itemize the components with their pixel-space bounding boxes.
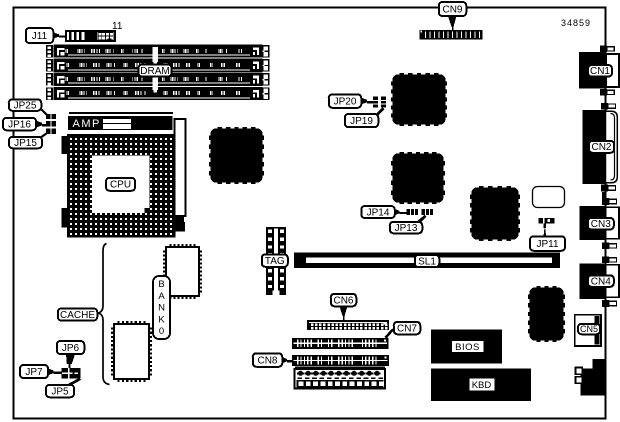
svg-text:JP11: JP11 <box>536 239 558 250</box>
svg-text:JP6: JP6 <box>62 343 80 354</box>
svg-text:CN8: CN8 <box>257 355 277 366</box>
svg-text:JP16: JP16 <box>8 119 31 130</box>
svg-text:J11: J11 <box>32 31 48 42</box>
svg-text:CN2: CN2 <box>591 142 611 153</box>
svg-text:CN7: CN7 <box>397 323 417 334</box>
svg-text:B: B <box>158 279 164 290</box>
svg-text:JP13: JP13 <box>395 223 418 234</box>
svg-text:N: N <box>158 303 165 314</box>
svg-text:11: 11 <box>112 21 123 32</box>
svg-text:JP25: JP25 <box>14 100 37 111</box>
svg-text:DRAM: DRAM <box>140 66 169 77</box>
svg-text:JP5: JP5 <box>51 386 69 397</box>
svg-text:CN1: CN1 <box>590 66 610 77</box>
svg-text:CN5: CN5 <box>580 324 598 334</box>
svg-text:0: 0 <box>159 326 164 337</box>
svg-text:CACHE: CACHE <box>60 310 95 321</box>
svg-text:JP7: JP7 <box>25 367 43 378</box>
svg-text:CPU: CPU <box>110 180 131 191</box>
svg-text:A: A <box>158 291 165 302</box>
svg-text:CN4: CN4 <box>591 276 611 287</box>
svg-text:JP19: JP19 <box>350 116 373 127</box>
svg-text:JP14: JP14 <box>367 207 390 218</box>
svg-text:SL1: SL1 <box>418 256 436 267</box>
svg-text:JP15: JP15 <box>14 138 37 149</box>
svg-text:AMP: AMP <box>73 118 101 130</box>
svg-text:K: K <box>158 314 165 325</box>
svg-text:KBD: KBD <box>472 380 492 391</box>
svg-text:CN6: CN6 <box>333 295 353 306</box>
svg-text:CN9: CN9 <box>442 4 462 15</box>
svg-text:TAG: TAG <box>265 256 285 267</box>
svg-text:JP20: JP20 <box>334 96 357 107</box>
svg-text:CN3: CN3 <box>591 219 611 230</box>
svg-text:34859: 34859 <box>561 18 591 28</box>
svg-text:BIOS: BIOS <box>455 342 480 353</box>
